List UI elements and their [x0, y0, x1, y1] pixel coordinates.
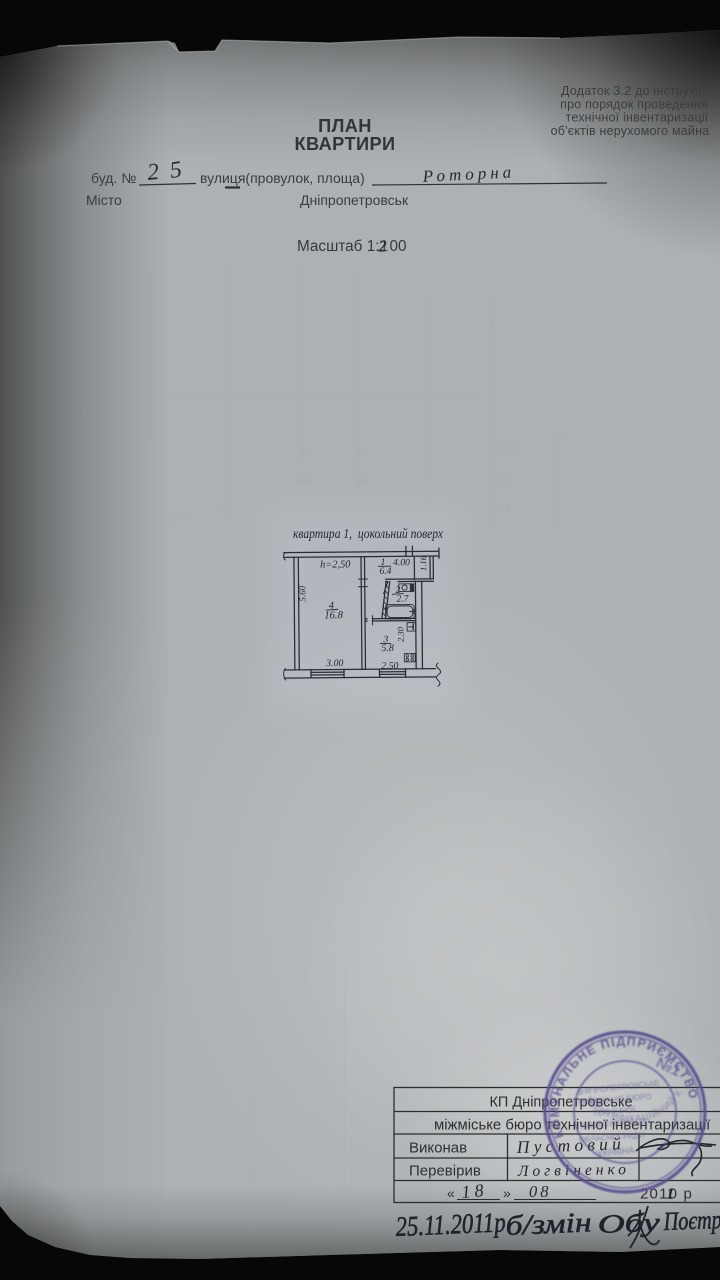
svg-text:25.11.2011р: 25.11.2011р — [395, 1207, 506, 1243]
svg-text:Виконав: Виконав — [409, 1140, 467, 1157]
svg-text:технічної інвентаризації: технічної інвентаризації — [566, 111, 709, 125]
svg-text:про порядок проведення: про порядок проведення — [560, 97, 708, 111]
svg-text:2: 2 — [378, 237, 387, 256]
svg-text:буд. №: буд. № — [91, 170, 136, 186]
svg-text:Додаток 3.2 до інструкції: Додаток 3.2 до інструкції — [561, 84, 709, 98]
svg-text:00: 00 — [390, 238, 407, 255]
svg-text:5.62: 5.62 — [168, 512, 186, 523]
svg-text:«: « — [447, 1185, 455, 1201]
svg-text:Місто: Місто — [86, 192, 122, 208]
svg-text:2.30: 2.30 — [396, 626, 406, 642]
svg-text:»: » — [503, 1185, 511, 1201]
svg-text:6.4: 6.4 — [379, 566, 391, 577]
svg-text:08: 08 — [529, 1182, 552, 1201]
svg-text:6.4: 6.4 — [300, 447, 313, 458]
svg-text:1.16: 1.16 — [418, 555, 428, 571]
svg-text:1: 1 — [666, 1186, 675, 1203]
svg-text:16.8: 16.8 — [324, 610, 343, 621]
svg-text:Перевірив: Перевірив — [409, 1163, 481, 1180]
svg-text:Дніпропетровськ: Дніпропетровськ — [300, 192, 409, 208]
svg-text:квартира 1, цокольний поверх: квартира 1, цокольний поверх — [293, 526, 444, 541]
svg-text:б/змін: б/змін — [505, 1207, 592, 1242]
svg-text:Поєтр: Поєтр — [662, 1205, 720, 1236]
svg-text:Логвіненко: Логвіненко — [517, 1161, 630, 1180]
svg-text:КВАРТИРИ: КВАРТИРИ — [295, 134, 396, 154]
svg-text:5.60: 5.60 — [297, 585, 307, 601]
svg-text:вулиця(провулок, площа): вулиця(провулок, площа) — [200, 170, 365, 186]
svg-text:h=2,50: h=2,50 — [320, 559, 351, 570]
svg-text:18: 18 — [461, 1180, 489, 1202]
svg-text:міжміське бюро технічної інвен: міжміське бюро технічної інвентаризації — [434, 1118, 710, 1134]
svg-text:2.7: 2.7 — [396, 593, 409, 604]
svg-text:2.50: 2.50 — [381, 661, 398, 672]
svg-text:16.8: 16.8 — [498, 444, 516, 455]
svg-text:5.8: 5.8 — [381, 643, 394, 654]
svg-text:2.7: 2.7 — [500, 475, 513, 486]
svg-text:3.00: 3.00 — [325, 658, 343, 669]
svg-text:5.4: 5.4 — [498, 504, 511, 515]
svg-text:5.8: 5.8 — [356, 478, 369, 489]
svg-text:Масштаб 1:: Масштаб 1: — [297, 238, 379, 255]
svg-text:4.00: 4.00 — [393, 557, 410, 568]
svg-text:об'єктів нерухомого майна: об'єктів нерухомого майна — [551, 124, 710, 138]
svg-text:5.8: 5.8 — [355, 447, 368, 458]
svg-text:6.4: 6.4 — [300, 477, 313, 488]
svg-text:ПЛАН: ПЛАН — [318, 116, 372, 136]
